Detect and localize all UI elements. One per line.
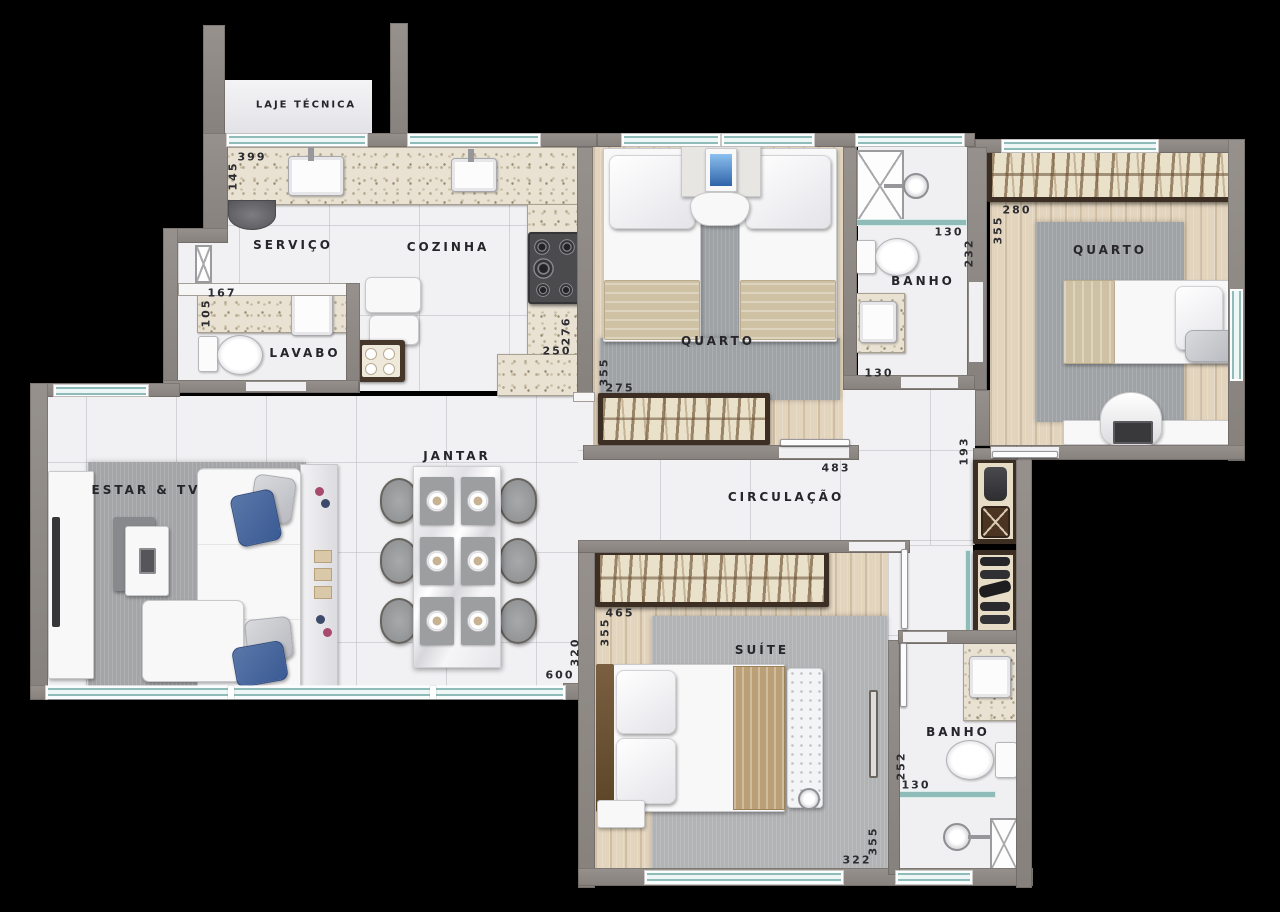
burner (536, 283, 550, 297)
window-quarto1-b (722, 134, 814, 146)
room-label-quarto1: QUARTO (681, 334, 755, 348)
room-label-cozinha: COZINHA (407, 240, 490, 254)
window-banho-social (856, 134, 964, 146)
dim-banho-suite-shower: 130 (902, 779, 931, 792)
wardrobe-suite (595, 550, 829, 607)
picture-frame (705, 148, 737, 192)
kitchen-counter-top (226, 147, 580, 205)
wall (843, 147, 857, 390)
room-label-lavabo: LAVABO (269, 346, 340, 360)
dim-cozinha-width: 250 (543, 345, 572, 358)
dim-servico-width: 399 (238, 151, 267, 164)
window-quarto2-top (1002, 140, 1158, 152)
decor-candle (323, 628, 332, 637)
door-opening-lavabo (246, 382, 306, 391)
shoes-icon (980, 602, 1010, 611)
burner (365, 348, 377, 360)
suite-stool (798, 788, 820, 810)
dim-banho-social-depth: 232 (963, 239, 976, 268)
dim-suite-depth-upper: 355 (599, 618, 612, 647)
shoes-icon (980, 615, 1010, 624)
partition-lavabo (178, 283, 358, 296)
wall (203, 25, 225, 137)
wall (1016, 445, 1032, 888)
door-opening-banho-social (901, 377, 958, 388)
dim-banho-suite-depth: 252 (895, 752, 908, 781)
plate (467, 610, 489, 632)
wall (390, 23, 408, 147)
burner (383, 348, 395, 360)
decor-box (314, 568, 332, 581)
door-leaf-suite (901, 549, 908, 629)
bag-icon (984, 467, 1007, 501)
window-laje (227, 134, 367, 146)
shoes-icon (980, 557, 1010, 566)
laptop (1113, 421, 1153, 444)
hanger-box-icon (981, 506, 1010, 538)
bed-suite-runner (733, 666, 785, 810)
dim-circulacao-depth: 193 (958, 437, 971, 466)
dim-estar-width: 600 (546, 669, 575, 682)
shower-glass-suite (893, 792, 995, 797)
shower-head-suite (943, 823, 971, 851)
toilet-tank-social (856, 240, 876, 274)
bed-suite-headboard (596, 664, 614, 812)
dim-suite-depth-lower: 355 (867, 827, 880, 856)
wardrobe-suite-clothes (600, 555, 824, 602)
wall (577, 147, 593, 402)
wall-endcap (573, 392, 595, 402)
kitchen-sink (451, 158, 497, 192)
fridge (365, 277, 421, 313)
door-niche-quarto2 (969, 282, 983, 362)
service-sink (288, 156, 344, 196)
dim-quarto1-width: 275 (606, 382, 635, 395)
window-mullion (228, 686, 234, 699)
floor-plan: LAJE TÉCNICA SERVIÇO COZINHA LAVABO QUAR… (0, 0, 1280, 912)
duct-column (195, 245, 212, 283)
room-label-quarto2: QUARTO (1073, 243, 1147, 257)
shower-head-social (903, 173, 929, 199)
room-label-estar-tv: ESTAR & TV (92, 483, 201, 497)
window-estar-top (54, 385, 148, 396)
lavabo-sink (291, 292, 333, 336)
service-faucet (308, 145, 314, 161)
laundry-tank (228, 200, 276, 230)
wardrobe-bedroom1-clothes (603, 398, 765, 440)
dim-servico-depth: 145 (227, 162, 240, 191)
dim-quarto2-width: 280 (1003, 204, 1032, 217)
dim-lavabo-depth: 105 (200, 299, 213, 328)
dim-suite-width: 322 (843, 854, 872, 867)
wardrobe-bedroom1 (598, 393, 770, 445)
dim-circulacao-width: 483 (822, 462, 851, 475)
suite-mirror (869, 690, 878, 778)
shower-glass-social (856, 220, 966, 225)
kitchen-peninsula (497, 354, 580, 396)
burner (365, 363, 377, 375)
dim-banho-social-shower: 130 (935, 226, 964, 239)
hall-closet-bags (973, 458, 1018, 544)
decor-box (314, 550, 332, 563)
plate (467, 490, 489, 512)
room-label-suite: SUÍTE (735, 643, 789, 657)
window-estar-bottom (46, 686, 565, 699)
burner (383, 363, 395, 375)
door-opening-quarto1 (779, 447, 849, 458)
wall (203, 133, 228, 238)
room-label-jantar: JANTAR (423, 449, 491, 463)
bed-twin-left-blanket (604, 280, 700, 340)
lavabo-toilet-tank (198, 336, 218, 372)
room-label-circulacao: CIRCULAÇÃO (728, 490, 844, 504)
plate (426, 610, 448, 632)
window-banho-suite-bottom (896, 871, 972, 884)
dim-quarto2-depth: 355 (992, 216, 1005, 245)
window-suite-bottom (645, 871, 843, 884)
toilet-bowl-social (875, 238, 919, 276)
bed-single-blanket (1063, 280, 1115, 364)
wardrobe-bedroom2 (987, 148, 1237, 202)
dining-chair (499, 478, 537, 524)
vanity-sink-social (859, 301, 897, 343)
plate (467, 550, 489, 572)
kitchen-faucet (468, 149, 474, 162)
wardrobe-bedroom2-clothes (992, 153, 1232, 197)
burner (534, 239, 550, 255)
suite-side-table (597, 800, 645, 828)
shoes-icon (980, 570, 1010, 579)
vanity-sink-suite (969, 656, 1011, 698)
bed-twin-right-blanket (740, 280, 836, 340)
bed-suite-pillow-bottom (616, 738, 676, 804)
room-label-banho-suite: BANHO (926, 725, 990, 739)
plate (426, 490, 448, 512)
door-opening-suite (849, 542, 905, 551)
wall (30, 383, 48, 700)
room-label-servico: SERVIÇO (253, 238, 333, 252)
hall-closet-shoes (973, 550, 1018, 638)
dining-chair (499, 538, 537, 584)
room-label-laje-tecnica: LAJE TÉCNICA (256, 100, 356, 111)
door-leaf-banho-suite (900, 643, 907, 707)
room-label-banho-social: BANHO (891, 274, 955, 288)
sofa-chaise (142, 600, 244, 682)
window-mullion (430, 686, 436, 699)
toilet-bowl-suite (946, 740, 994, 780)
window-quarto1-a (622, 134, 720, 146)
door-leaf-quarto1 (780, 439, 850, 446)
decor-box (314, 586, 332, 599)
lavabo-toilet-bowl (217, 335, 263, 375)
burner (559, 283, 573, 297)
dim-banho-social-door: 130 (865, 367, 894, 380)
wall (346, 283, 360, 393)
decor-candle (315, 487, 324, 496)
burner (559, 239, 575, 255)
decor-candle (321, 499, 330, 508)
picture-frame-screen (710, 154, 732, 186)
cooktop-small (357, 340, 405, 382)
wall (975, 390, 990, 446)
burner (533, 258, 554, 279)
dining-chair (499, 598, 537, 644)
cooktop-main (528, 232, 581, 304)
desk-chair (690, 192, 750, 226)
dim-estar-depth: 320 (569, 638, 582, 667)
hall-glass-panel (966, 551, 970, 633)
window-quarto2-right (1230, 289, 1243, 381)
door-leaf-quarto2 (992, 451, 1058, 458)
decor-candle (316, 615, 325, 624)
tv-screen (52, 517, 60, 627)
window-cozinha (408, 134, 540, 146)
wall (578, 540, 595, 888)
door-opening-banho-suite (903, 632, 947, 642)
bed-suite-pillow-top (616, 670, 676, 734)
coffee-table-tray (139, 548, 156, 574)
plate (426, 550, 448, 572)
toilet-tank-suite (995, 742, 1017, 778)
dim-cozinha-depth: 276 (560, 317, 573, 346)
bed-suite-bench (787, 668, 823, 808)
shower-tray-suite (990, 818, 1018, 870)
wall (163, 228, 178, 396)
